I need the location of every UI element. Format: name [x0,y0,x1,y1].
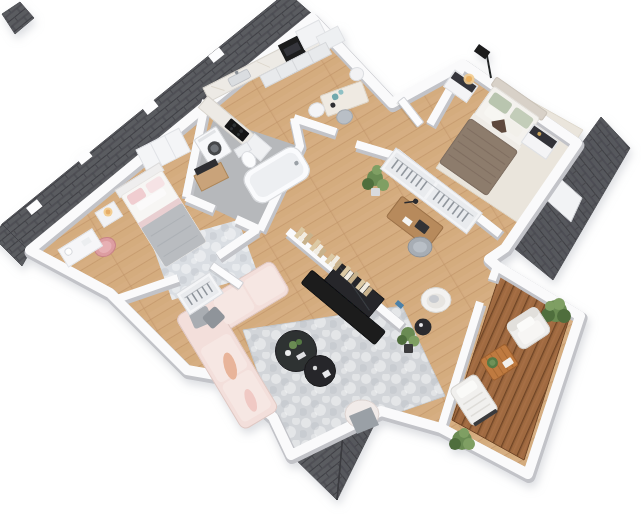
dark-side-table [415,319,432,336]
deco-dot [313,366,317,370]
side-table-deco [419,323,423,327]
plant-pot-dark [404,344,413,353]
table-plant [289,341,297,349]
white-shell-armchair [421,288,451,313]
round-coffee-table-small [305,356,336,387]
office-chair [408,237,432,257]
table-lamp [466,76,472,82]
building-group [0,0,630,500]
bedside-lamp [106,210,111,215]
patterned-cushion [429,295,439,303]
white-cup [285,350,291,356]
table-plant-2 [296,339,302,345]
northwest-corner-roof [2,2,34,34]
plant-pot [371,188,380,196]
floorplan-render [0,0,642,520]
floorplan-canvas [0,0,642,520]
